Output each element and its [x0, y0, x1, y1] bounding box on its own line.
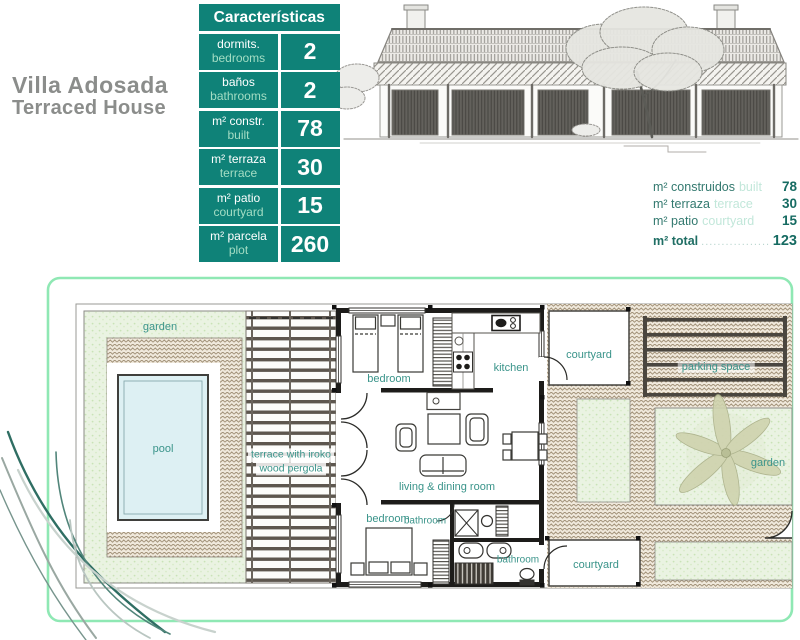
label-terrace: terrace with irokowood pergola	[248, 448, 334, 475]
wardrobe-top	[433, 318, 452, 386]
summary-row-built: m² construidos built 78	[653, 179, 797, 196]
label-living: living & dining room	[399, 481, 495, 493]
label-bedroom-top: bedroom	[367, 373, 410, 385]
summary-total-label: m² total	[653, 234, 698, 248]
label-courtyard-top: courtyard	[566, 349, 612, 361]
summary-value: 78	[782, 179, 797, 194]
label-en: courtyard	[213, 206, 263, 220]
brochure-page: { "header": { "title_es": "Villa Adosada…	[0, 0, 800, 640]
summary-label-en: terrace	[714, 197, 753, 211]
char-row-terrace-label: m² terraza terrace	[199, 149, 278, 185]
label-en: built	[227, 129, 249, 143]
stairs	[455, 563, 493, 584]
summary-value: 30	[782, 196, 797, 211]
label-bathroom-right: bathroom	[497, 555, 539, 566]
chimney-right-icon	[714, 5, 738, 32]
property-title-en: Terraced House	[12, 98, 168, 119]
entry-vestibule	[427, 393, 460, 410]
characteristics-header: Características	[199, 4, 340, 31]
summary-label-es: m² patio	[653, 214, 698, 228]
summary-label-en: courtyard	[702, 214, 754, 228]
label-pool: pool	[153, 443, 174, 455]
summary-row-total: m² total .................. 123	[653, 233, 797, 250]
char-row-courtyard-label: m² patio courtyard	[199, 188, 278, 224]
char-row-courtyard-value: 15	[281, 188, 340, 224]
label-kitchen: kitchen	[494, 362, 529, 374]
summary-row-terrace: m² terraza terrace 30	[653, 196, 797, 213]
summary-row-courtyard: m² patio courtyard 15	[653, 213, 797, 230]
char-row-bedrooms-value: 2	[281, 34, 340, 70]
label-es: dormits.	[217, 38, 260, 52]
area-summary: m² construidos built 78 m² terraza terra…	[653, 179, 797, 250]
label-en: bathrooms	[210, 90, 267, 104]
summary-total-leader: ..................	[701, 236, 770, 248]
char-row-terrace-value: 30	[281, 149, 340, 185]
chimney-left-icon	[404, 5, 428, 32]
linen-closet	[496, 506, 508, 536]
label-es: m² terraza	[211, 153, 266, 167]
summary-total-value: 123	[773, 233, 797, 249]
label-en: bedrooms	[212, 52, 265, 66]
label-en: plot	[229, 244, 248, 258]
label-bathroom-center: bathroom	[404, 516, 446, 527]
label-es: m² constr.	[212, 115, 265, 129]
summary-value: 15	[782, 213, 797, 228]
green-strip-bottom	[655, 542, 792, 580]
label-en: terrace	[220, 167, 257, 181]
label-es: baños	[222, 76, 255, 90]
label-terrace-line1: terrace with iroko	[248, 448, 334, 462]
label-es: m² patio	[217, 192, 260, 206]
label-parking: parking space	[678, 361, 755, 373]
label-courtyard-bottom: courtyard	[573, 559, 619, 571]
summary-label-es: m² terraza	[653, 197, 710, 211]
property-title: Villa Adosada Terraced House	[12, 74, 168, 119]
char-row-bedrooms-label: dormits. bedrooms	[199, 34, 278, 70]
char-row-bathrooms-value: 2	[281, 72, 340, 108]
terrace-pergola-area	[246, 311, 336, 583]
char-row-built-label: m² constr. built	[199, 111, 278, 147]
char-row-built-value: 78	[281, 111, 340, 147]
summary-label-es: m² construidos	[653, 180, 735, 194]
house-sketch	[329, 5, 798, 152]
label-es: m² parcela	[210, 230, 267, 244]
char-row-bathrooms-label: baños bathrooms	[199, 72, 278, 108]
label-garden-right: garden	[751, 457, 785, 469]
char-row-plot-label: m² parcela plot	[199, 226, 278, 262]
characteristics-table: Características dormits. bedrooms 2 baño…	[199, 4, 340, 262]
green-strip-middle	[577, 399, 630, 502]
summary-label-en: built	[739, 180, 762, 194]
label-terrace-line2: wood pergola	[256, 462, 325, 476]
char-row-plot-value: 260	[281, 226, 340, 262]
wardrobe-bottom	[433, 540, 449, 584]
property-title-es: Villa Adosada	[12, 74, 168, 98]
courtyard-top-area	[549, 311, 629, 385]
label-garden-left: garden	[143, 321, 177, 333]
